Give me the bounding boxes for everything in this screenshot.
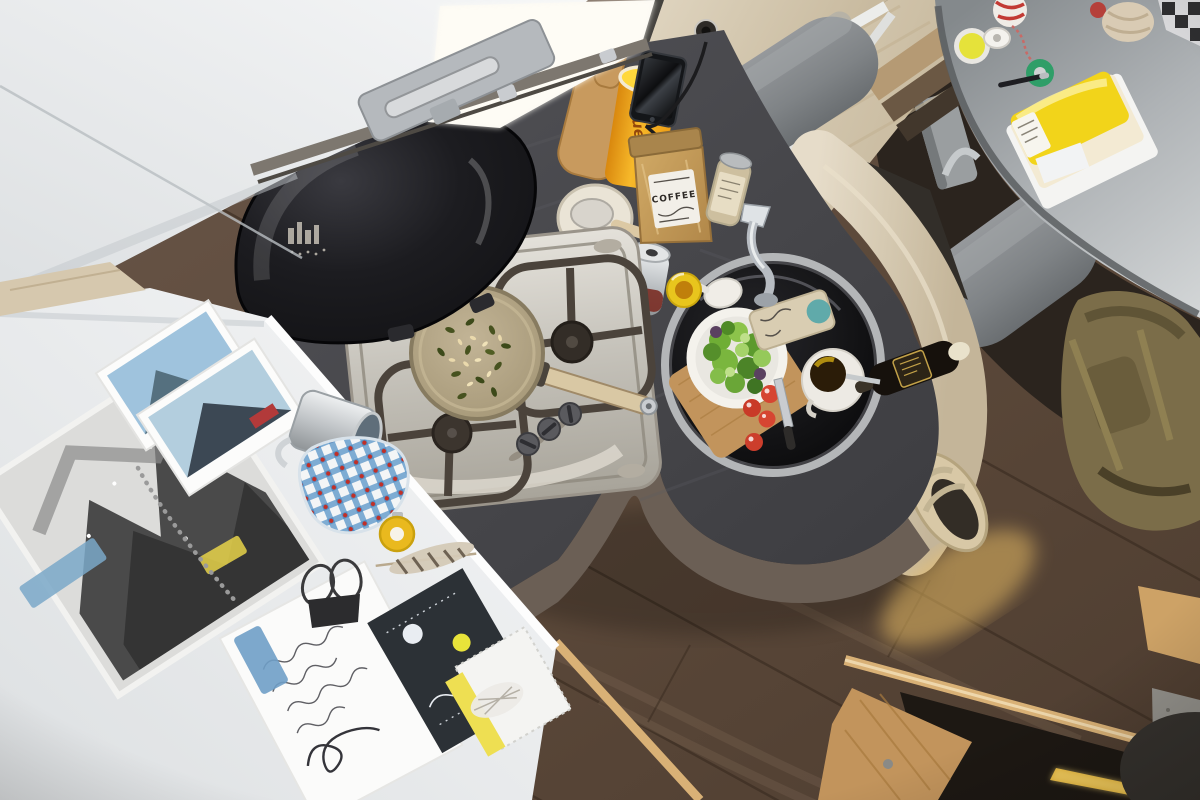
photo-canvas: Overhead view of a camper van interior: … [0, 0, 1200, 800]
camper-van-photo: Overhead view of a camper van interior: … [0, 0, 1200, 800]
vignette [0, 0, 1200, 800]
